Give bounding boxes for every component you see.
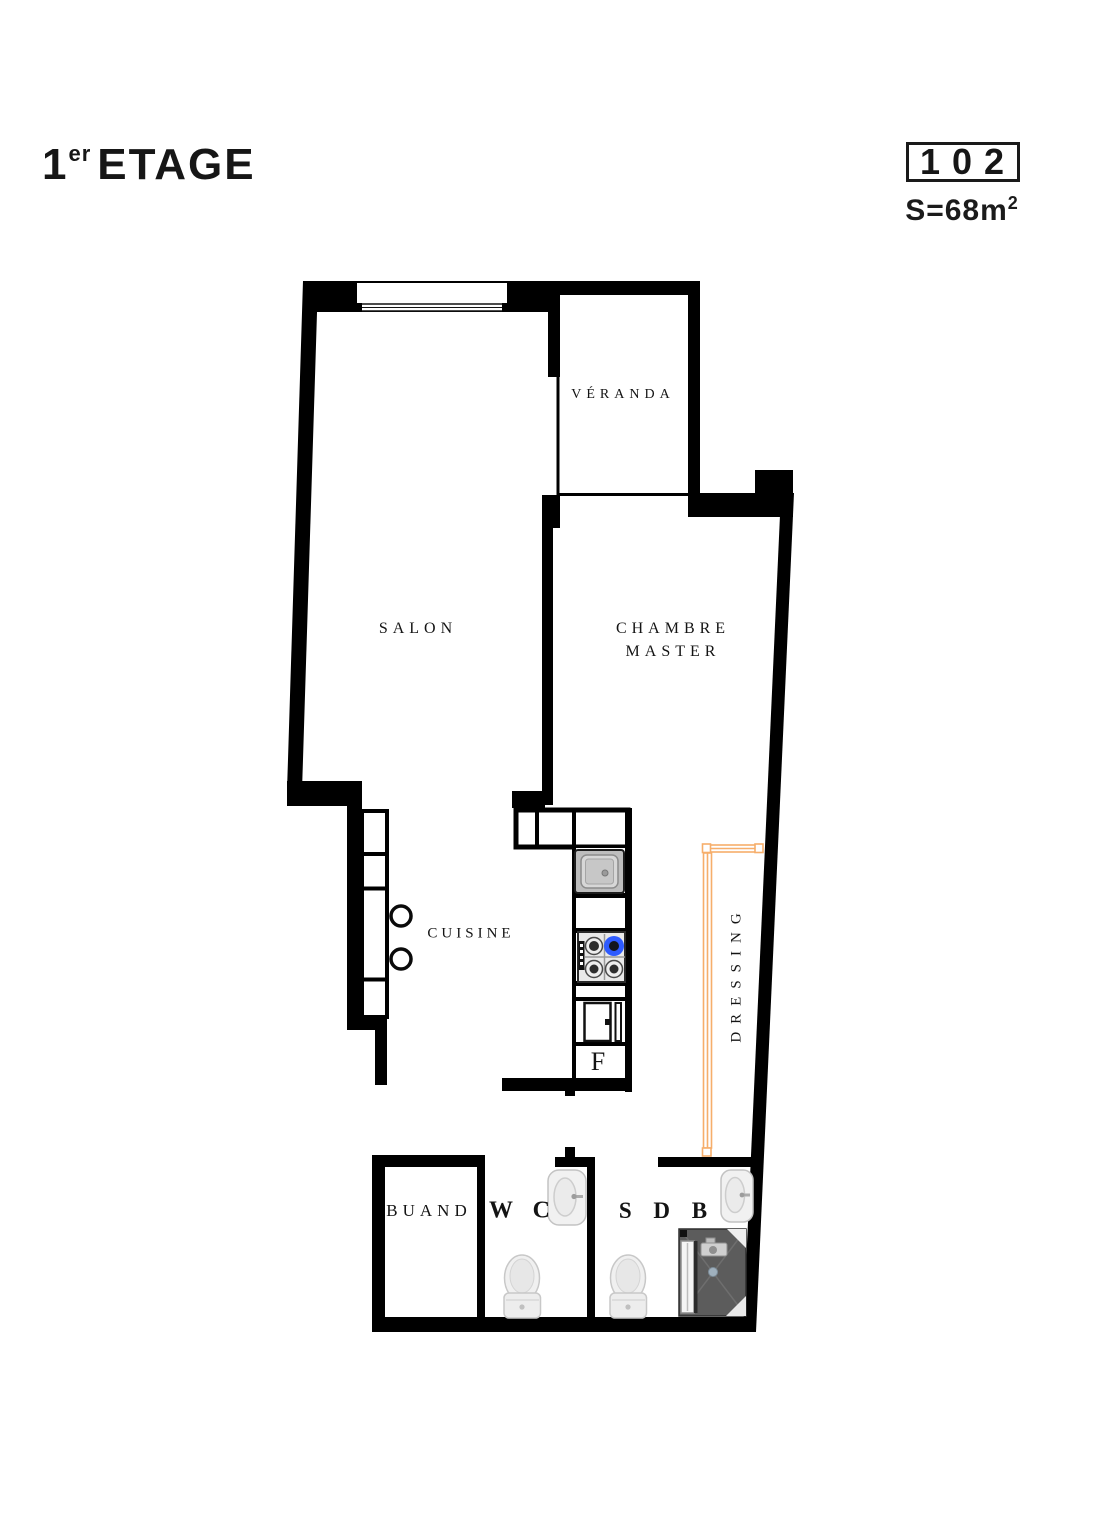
chambre-line2: MASTER	[616, 640, 730, 663]
room-label-veranda: VÉRANDA	[571, 387, 674, 403]
floor-plan-drawing	[0, 0, 1106, 1536]
room-label-salon: SALON	[379, 620, 457, 638]
wc-toilet	[504, 1255, 541, 1318]
chambre-line1: CHAMBRE	[616, 617, 730, 640]
room-label-chambre-master: CHAMBRE MASTER	[616, 617, 730, 663]
room-label-wc: W C	[489, 1198, 557, 1225]
cuisine-circle-symbols	[391, 906, 411, 969]
sdb-toilet	[610, 1255, 647, 1318]
exterior-walls	[287, 281, 794, 1332]
fridge	[585, 1003, 622, 1041]
room-label-dressing: DRESSING	[729, 905, 746, 1042]
window	[356, 283, 508, 312]
fridge-label: F	[591, 1047, 605, 1077]
room-label-sdb: S D B	[619, 1198, 715, 1224]
room-label-buanderie: BUAND	[386, 1201, 471, 1221]
kitchen-counter-top-row	[516, 810, 628, 847]
kitchen-cabinets	[362, 811, 387, 1017]
room-label-cuisine: CUISINE	[427, 926, 514, 943]
kitchen-sink	[575, 850, 624, 893]
shower	[679, 1229, 746, 1316]
floor-plan-page: 1erETAGE 102 S=68m2	[0, 0, 1106, 1536]
stove	[578, 932, 625, 982]
sdb-washbasin	[721, 1170, 753, 1222]
